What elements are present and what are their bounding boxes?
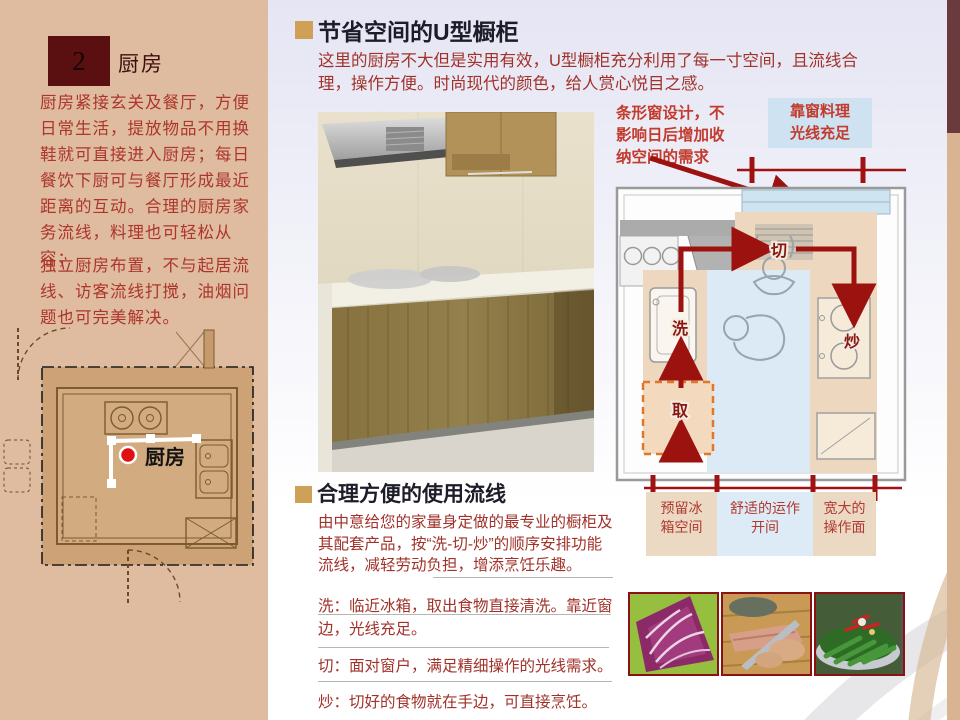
section1-title: 节省空间的U型橱柜 bbox=[318, 13, 519, 47]
chapter-title: 厨房 bbox=[118, 48, 164, 78]
sidebar-paragraph-2: 独立厨房布置，不与起居流线、访客流线打搅，油烟问题也可完美解决。 bbox=[40, 253, 254, 331]
chapter-number: 2 bbox=[72, 46, 86, 77]
divider-3 bbox=[318, 647, 609, 648]
stir-fried-vegetables-photo bbox=[814, 592, 905, 676]
fry-note: 炒：切好的食物就在手边，可直接烹饪。 bbox=[318, 692, 628, 714]
plan-kitchen-label: 厨房 bbox=[145, 445, 185, 469]
kitchen-photo-art bbox=[318, 112, 594, 472]
section2-intro: 由中意给您的家量身定做的最专业的橱柜及其配套产品，按“洗-切-炒”的顺序安排功能… bbox=[318, 512, 614, 577]
cut-note: 切：面对窗户，满足精细操作的光线需求。 bbox=[318, 656, 628, 678]
label-counter-surface: 宽大的 操作面 bbox=[813, 492, 876, 556]
divider-4 bbox=[318, 681, 612, 682]
kitchen-location-dot bbox=[120, 447, 136, 463]
edge-strip-tan bbox=[947, 133, 960, 720]
edge-strip-maroon bbox=[947, 0, 960, 133]
wall-cabinet-icon bbox=[446, 112, 556, 176]
sidebar: 2 厨房 厨房紧接玄关及餐厅，方便日常生活，提放物品不用换鞋就可直接进入厨房；每… bbox=[0, 0, 268, 720]
wash-note: 洗：临近冰箱，取出食物直接清洗。靠近窗边，光线充足。 bbox=[318, 596, 618, 641]
window-note-box: 靠窗料理 光线充足 bbox=[768, 98, 872, 148]
section1-bullet-icon bbox=[295, 21, 313, 39]
step-cut-label: 切 bbox=[771, 242, 787, 260]
step-wash-label: 洗 bbox=[672, 319, 688, 338]
chapter-number-box: 2 bbox=[48, 36, 110, 86]
food-photo-row bbox=[628, 592, 905, 676]
apartment-floor-plan: 厨房 bbox=[0, 322, 262, 614]
step-take-label: 取 bbox=[672, 402, 688, 420]
slide: 2 厨房 厨房紧接玄关及餐厅，方便日常生活，提放物品不用换鞋就可直接进入厨房；每… bbox=[0, 0, 960, 720]
red-cabbage-photo bbox=[628, 592, 719, 676]
divider-1 bbox=[433, 577, 613, 578]
kitchen-photo bbox=[318, 112, 594, 472]
label-fridge-space: 预留冰 箱空间 bbox=[646, 492, 717, 556]
flow-diagram-block: 条形窗设计，不影响日后增加收纳空间的需求 靠窗料理 光线充足 bbox=[608, 95, 914, 565]
section2-title: 合理方便的使用流线 bbox=[317, 478, 506, 508]
sidebar-paragraph-1: 厨房紧接玄关及餐厅，方便日常生活，提放物品不用换鞋就可直接进入厨房；每日餐饮下厨… bbox=[40, 90, 254, 272]
cutting-fish-photo bbox=[721, 592, 812, 676]
section1-intro: 这里的厨房不大但是实用有效，U型橱柜充分利用了每一寸空间，且流线合理，操作方便。… bbox=[318, 50, 890, 96]
step-fry-label: 炒 bbox=[844, 333, 860, 351]
label-working-area: 舒适的运作 开间 bbox=[717, 492, 813, 556]
kitchen-floor-area bbox=[707, 270, 810, 473]
section2-bullet-icon bbox=[295, 486, 312, 503]
window-measure-line bbox=[737, 157, 906, 183]
